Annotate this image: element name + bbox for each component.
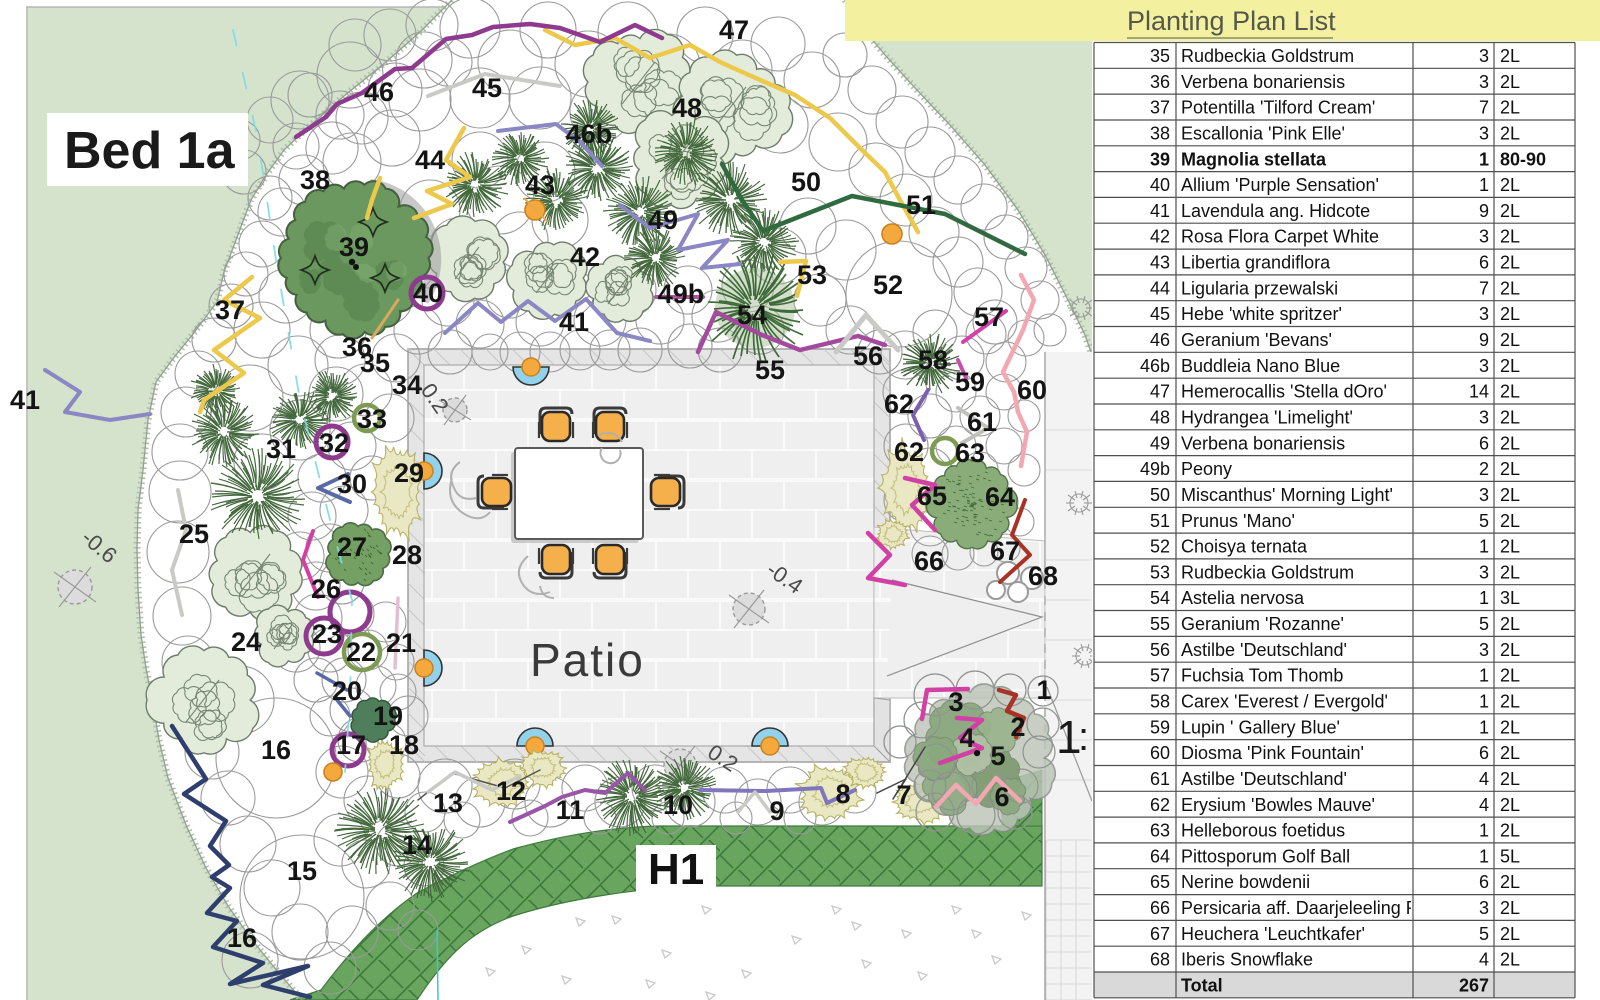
- svg-text:3: 3: [1479, 485, 1489, 505]
- svg-text:Hebe 'white spritzer': Hebe 'white spritzer': [1181, 304, 1342, 324]
- svg-text:52: 52: [873, 270, 903, 300]
- svg-text:2L: 2L: [1500, 666, 1520, 686]
- svg-text:51: 51: [1150, 511, 1170, 531]
- svg-text:29: 29: [394, 458, 424, 488]
- svg-text:68: 68: [1028, 561, 1058, 591]
- svg-text:34: 34: [392, 370, 422, 400]
- svg-text:80-90: 80-90: [1500, 149, 1546, 169]
- svg-text:2L: 2L: [1500, 795, 1520, 815]
- svg-text:46b: 46b: [1140, 356, 1170, 376]
- svg-text:18: 18: [389, 730, 419, 760]
- svg-text:48: 48: [672, 93, 702, 123]
- svg-text:49: 49: [648, 205, 678, 235]
- svg-text:2L: 2L: [1500, 356, 1520, 376]
- svg-text:44: 44: [1150, 278, 1170, 298]
- svg-text:Pittosporum Golf Ball: Pittosporum Golf Ball: [1181, 846, 1350, 866]
- svg-text:62: 62: [884, 389, 914, 419]
- svg-text:47: 47: [719, 15, 749, 45]
- svg-text:Astelia nervosa: Astelia nervosa: [1181, 588, 1305, 608]
- svg-text:3: 3: [1479, 408, 1489, 428]
- svg-text:Helleborous foetidus: Helleborous foetidus: [1181, 821, 1345, 841]
- svg-text:36: 36: [1150, 72, 1170, 92]
- svg-text:59: 59: [1150, 717, 1170, 737]
- svg-text:Nerine bowdenii: Nerine bowdenii: [1181, 872, 1310, 892]
- svg-text:2L: 2L: [1500, 253, 1520, 273]
- svg-text:16: 16: [227, 923, 257, 953]
- svg-text:3: 3: [1479, 562, 1489, 582]
- svg-text:2: 2: [1010, 712, 1025, 742]
- svg-text:2L: 2L: [1500, 330, 1520, 350]
- svg-text:2: 2: [1479, 459, 1489, 479]
- svg-text:45: 45: [472, 73, 502, 103]
- svg-text:2L: 2L: [1500, 614, 1520, 634]
- svg-text:33: 33: [357, 404, 387, 434]
- svg-text:Lupin ' Gallery Blue': Lupin ' Gallery Blue': [1181, 717, 1340, 737]
- svg-text:5: 5: [990, 741, 1005, 771]
- svg-text:26: 26: [311, 574, 341, 604]
- svg-text:13: 13: [433, 788, 463, 818]
- svg-text:2L: 2L: [1500, 950, 1520, 970]
- svg-text:1: 1: [1479, 149, 1489, 169]
- svg-text:Libertia grandiflora: Libertia grandiflora: [1181, 253, 1331, 273]
- svg-text:38: 38: [1150, 124, 1170, 144]
- svg-text:49b: 49b: [658, 279, 705, 309]
- svg-text:Planting Plan List: Planting Plan List: [1127, 6, 1336, 36]
- svg-text:63: 63: [955, 438, 985, 468]
- svg-text:5: 5: [1479, 614, 1489, 634]
- svg-text:Peony: Peony: [1181, 459, 1232, 479]
- svg-text:Rudbeckia Goldstrum: Rudbeckia Goldstrum: [1181, 562, 1354, 582]
- svg-text:49: 49: [1150, 433, 1170, 453]
- svg-text:2L: 2L: [1500, 743, 1520, 763]
- svg-text:1: 1: [1479, 821, 1489, 841]
- svg-text:2L: 2L: [1500, 278, 1520, 298]
- svg-text:12: 12: [496, 776, 526, 806]
- svg-text:6: 6: [1479, 433, 1489, 453]
- svg-text:Rudbeckia Goldstrum: Rudbeckia Goldstrum: [1181, 46, 1354, 66]
- svg-text:15: 15: [287, 856, 317, 886]
- svg-text:1: 1: [1479, 588, 1489, 608]
- svg-text:23: 23: [312, 619, 342, 649]
- svg-text:62: 62: [1150, 795, 1170, 815]
- svg-text:42: 42: [570, 242, 600, 272]
- svg-text:56: 56: [1150, 640, 1170, 660]
- svg-text:2L: 2L: [1500, 46, 1520, 66]
- svg-text:3L: 3L: [1500, 588, 1520, 608]
- svg-text:28: 28: [392, 540, 422, 570]
- svg-text:Allium 'Purple Sensation': Allium 'Purple Sensation': [1181, 175, 1379, 195]
- svg-text:2L: 2L: [1500, 72, 1520, 92]
- svg-text:Ligularia przewalski: Ligularia przewalski: [1181, 278, 1338, 298]
- svg-text:25: 25: [179, 519, 209, 549]
- svg-text:Miscanthus' Morning Light': Miscanthus' Morning Light': [1181, 485, 1393, 505]
- svg-text:37: 37: [215, 295, 245, 325]
- svg-text:54: 54: [1150, 588, 1170, 608]
- svg-text:267: 267: [1459, 976, 1489, 996]
- svg-text:14: 14: [1469, 382, 1489, 402]
- svg-text:2L: 2L: [1500, 433, 1520, 453]
- svg-text:50: 50: [1150, 485, 1170, 505]
- svg-text:9: 9: [1479, 330, 1489, 350]
- svg-text:2L: 2L: [1500, 924, 1520, 944]
- svg-text:Hemerocallis 'Stella dOro': Hemerocallis 'Stella dOro': [1181, 382, 1387, 402]
- svg-text:58: 58: [1150, 692, 1170, 712]
- svg-text:64: 64: [985, 482, 1015, 512]
- svg-text:43: 43: [1150, 253, 1170, 273]
- svg-text:2L: 2L: [1500, 692, 1520, 712]
- svg-text:1: 1: [1479, 717, 1489, 737]
- svg-text:2L: 2L: [1500, 382, 1520, 402]
- svg-text:1: 1: [1479, 175, 1489, 195]
- svg-text:46: 46: [1150, 330, 1170, 350]
- svg-text:Persicaria aff. Daarjeleeling: Persicaria aff. Daarjeleeling R: [1181, 898, 1419, 918]
- svg-text:Magnolia stellata: Magnolia stellata: [1181, 149, 1327, 169]
- svg-text:1: 1: [1036, 675, 1051, 705]
- svg-text:2L: 2L: [1500, 821, 1520, 841]
- svg-text:9: 9: [1479, 201, 1489, 221]
- svg-text:7: 7: [1479, 278, 1489, 298]
- svg-text:58: 58: [918, 345, 948, 375]
- svg-text:Potentilla 'Tilford Cream': Potentilla 'Tilford Cream': [1181, 98, 1375, 118]
- svg-text:48: 48: [1150, 408, 1170, 428]
- svg-text:3: 3: [1479, 304, 1489, 324]
- svg-text:54: 54: [737, 300, 767, 330]
- svg-text:39: 39: [339, 232, 369, 262]
- svg-text:Geranium 'Rozanne': Geranium 'Rozanne': [1181, 614, 1344, 634]
- svg-text:40: 40: [1150, 175, 1170, 195]
- svg-text:36: 36: [342, 332, 372, 362]
- svg-text:63: 63: [1150, 821, 1170, 841]
- svg-text:5: 5: [1479, 511, 1489, 531]
- svg-text:Choisya ternata: Choisya ternata: [1181, 537, 1308, 557]
- svg-text:3: 3: [1479, 46, 1489, 66]
- svg-text:Diosma 'Pink Fountain': Diosma 'Pink Fountain': [1181, 743, 1364, 763]
- svg-text:42: 42: [1150, 227, 1170, 247]
- svg-text:30: 30: [337, 469, 367, 499]
- svg-text:Iberis Snowflake: Iberis Snowflake: [1181, 950, 1313, 970]
- svg-text:3: 3: [1479, 640, 1489, 660]
- svg-text:38: 38: [300, 165, 330, 195]
- svg-text:2L: 2L: [1500, 227, 1520, 247]
- svg-text:40: 40: [413, 278, 443, 308]
- svg-text:17: 17: [336, 730, 366, 760]
- svg-text:3: 3: [1479, 898, 1489, 918]
- svg-text:60: 60: [1017, 375, 1047, 405]
- svg-text:2L: 2L: [1500, 640, 1520, 660]
- svg-text:7: 7: [1479, 98, 1489, 118]
- svg-text:2L: 2L: [1500, 175, 1520, 195]
- svg-text:14: 14: [402, 830, 432, 860]
- svg-text:5: 5: [1479, 924, 1489, 944]
- svg-text:3: 3: [1479, 72, 1489, 92]
- svg-text:2L: 2L: [1500, 898, 1520, 918]
- svg-text:5L: 5L: [1500, 846, 1520, 866]
- svg-text:44: 44: [415, 145, 445, 175]
- svg-text:Bed 1a: Bed 1a: [64, 122, 236, 180]
- svg-text:60: 60: [1150, 743, 1170, 763]
- svg-text:3: 3: [948, 687, 963, 717]
- svg-text:39: 39: [1150, 149, 1170, 169]
- svg-text:68: 68: [1150, 950, 1170, 970]
- svg-text:Escallonia 'Pink Elle': Escallonia 'Pink Elle': [1181, 124, 1345, 144]
- svg-text:3: 3: [1479, 356, 1489, 376]
- svg-text:4: 4: [959, 723, 974, 753]
- svg-text:65: 65: [1150, 872, 1170, 892]
- svg-text:53: 53: [797, 260, 827, 290]
- svg-text:52: 52: [1150, 537, 1170, 557]
- svg-text:2L: 2L: [1500, 537, 1520, 557]
- svg-text:1: 1: [1479, 692, 1489, 712]
- svg-text:43: 43: [525, 170, 555, 200]
- svg-text:Carex 'Everest / Evergold': Carex 'Everest / Evergold': [1181, 692, 1388, 712]
- svg-text:20: 20: [332, 676, 362, 706]
- svg-text:11: 11: [556, 795, 585, 825]
- svg-text:57: 57: [974, 302, 1004, 332]
- svg-text:51: 51: [906, 190, 936, 220]
- svg-text:6: 6: [1479, 253, 1489, 273]
- svg-text:Prunus 'Mano': Prunus 'Mano': [1181, 511, 1295, 531]
- svg-text:Astilbe 'Deutschland': Astilbe 'Deutschland': [1181, 769, 1347, 789]
- svg-text:2L: 2L: [1500, 201, 1520, 221]
- svg-text:7: 7: [896, 780, 911, 810]
- svg-text:57: 57: [1150, 666, 1170, 686]
- svg-text:37: 37: [1150, 98, 1170, 118]
- svg-text:2L: 2L: [1500, 562, 1520, 582]
- svg-text:2L: 2L: [1500, 408, 1520, 428]
- svg-text:Verbena bonariensis: Verbena bonariensis: [1181, 72, 1345, 92]
- svg-text:2L: 2L: [1500, 769, 1520, 789]
- svg-text:Rosa Flora Carpet White: Rosa Flora Carpet White: [1181, 227, 1379, 247]
- svg-text:2L: 2L: [1500, 485, 1520, 505]
- svg-text:3: 3: [1479, 124, 1489, 144]
- svg-text:8: 8: [835, 779, 850, 809]
- svg-text::: :: [1078, 715, 1089, 759]
- svg-text:4: 4: [1479, 769, 1489, 789]
- svg-text:H1: H1: [648, 845, 704, 894]
- svg-text:61: 61: [967, 407, 997, 437]
- svg-text:27: 27: [337, 532, 367, 562]
- svg-text:Fuchsia Tom Thomb: Fuchsia Tom Thomb: [1181, 666, 1343, 686]
- svg-text:61: 61: [1150, 769, 1170, 789]
- svg-text:10: 10: [663, 790, 693, 820]
- svg-text:16: 16: [261, 735, 291, 765]
- svg-text:31: 31: [266, 434, 296, 464]
- svg-text:67: 67: [1150, 924, 1170, 944]
- svg-text:Hydrangea 'Limelight': Hydrangea 'Limelight': [1181, 408, 1353, 428]
- svg-text:35: 35: [1150, 46, 1170, 66]
- svg-text:3: 3: [1479, 227, 1489, 247]
- svg-text:4: 4: [1479, 795, 1489, 815]
- svg-text:64: 64: [1150, 846, 1170, 866]
- svg-text:2L: 2L: [1500, 872, 1520, 892]
- svg-text:2L: 2L: [1500, 511, 1520, 531]
- svg-text:22: 22: [346, 637, 376, 667]
- svg-text:41: 41: [1150, 201, 1170, 221]
- svg-text:Patio: Patio: [530, 634, 645, 686]
- svg-text:62: 62: [894, 437, 924, 467]
- svg-text:1: 1: [1479, 666, 1489, 686]
- svg-text:32: 32: [319, 428, 349, 458]
- svg-text:Geranium 'Bevans': Geranium 'Bevans': [1181, 330, 1332, 350]
- svg-text:56: 56: [853, 341, 883, 371]
- svg-text:Lavendula ang. Hidcote: Lavendula ang. Hidcote: [1181, 201, 1370, 221]
- svg-text:55: 55: [1150, 614, 1170, 634]
- svg-text:1: 1: [1479, 537, 1489, 557]
- svg-text:9: 9: [769, 796, 784, 826]
- svg-text:Buddleia Nano Blue: Buddleia Nano Blue: [1181, 356, 1340, 376]
- svg-text:Verbena bonariensis: Verbena bonariensis: [1181, 433, 1345, 453]
- svg-text:46: 46: [364, 77, 394, 107]
- svg-text:2L: 2L: [1500, 459, 1520, 479]
- svg-text:41: 41: [10, 385, 40, 415]
- svg-text:1: 1: [1479, 846, 1489, 866]
- svg-text:6: 6: [994, 782, 1009, 812]
- svg-text:46b: 46b: [566, 119, 613, 149]
- svg-text:67: 67: [990, 536, 1020, 566]
- svg-text:4: 4: [1479, 950, 1489, 970]
- svg-text:2L: 2L: [1500, 304, 1520, 324]
- svg-text:Total: Total: [1181, 976, 1223, 996]
- svg-text:49b: 49b: [1140, 459, 1170, 479]
- svg-text:2L: 2L: [1500, 717, 1520, 737]
- svg-text:2L: 2L: [1500, 124, 1520, 144]
- svg-text:19: 19: [373, 701, 403, 731]
- svg-text:45: 45: [1150, 304, 1170, 324]
- svg-text:53: 53: [1150, 562, 1170, 582]
- svg-text:66: 66: [1150, 898, 1170, 918]
- svg-text:Astilbe 'Deutschland': Astilbe 'Deutschland': [1181, 640, 1347, 660]
- svg-text:66: 66: [914, 546, 944, 576]
- svg-text:55: 55: [755, 355, 785, 385]
- svg-text:Erysium 'Bowles Mauve': Erysium 'Bowles Mauve': [1181, 795, 1375, 815]
- svg-text:41: 41: [559, 307, 589, 337]
- svg-text:47: 47: [1150, 382, 1170, 402]
- svg-text:6: 6: [1479, 872, 1489, 892]
- svg-text:2L: 2L: [1500, 98, 1520, 118]
- svg-text:Heuchera 'Leuchtkafer': Heuchera 'Leuchtkafer': [1181, 924, 1365, 944]
- svg-text:6: 6: [1479, 743, 1489, 763]
- svg-text:21: 21: [386, 628, 416, 658]
- svg-text:50: 50: [791, 167, 821, 197]
- svg-text:59: 59: [955, 367, 985, 397]
- svg-text:65: 65: [917, 481, 947, 511]
- svg-text:24: 24: [231, 627, 261, 657]
